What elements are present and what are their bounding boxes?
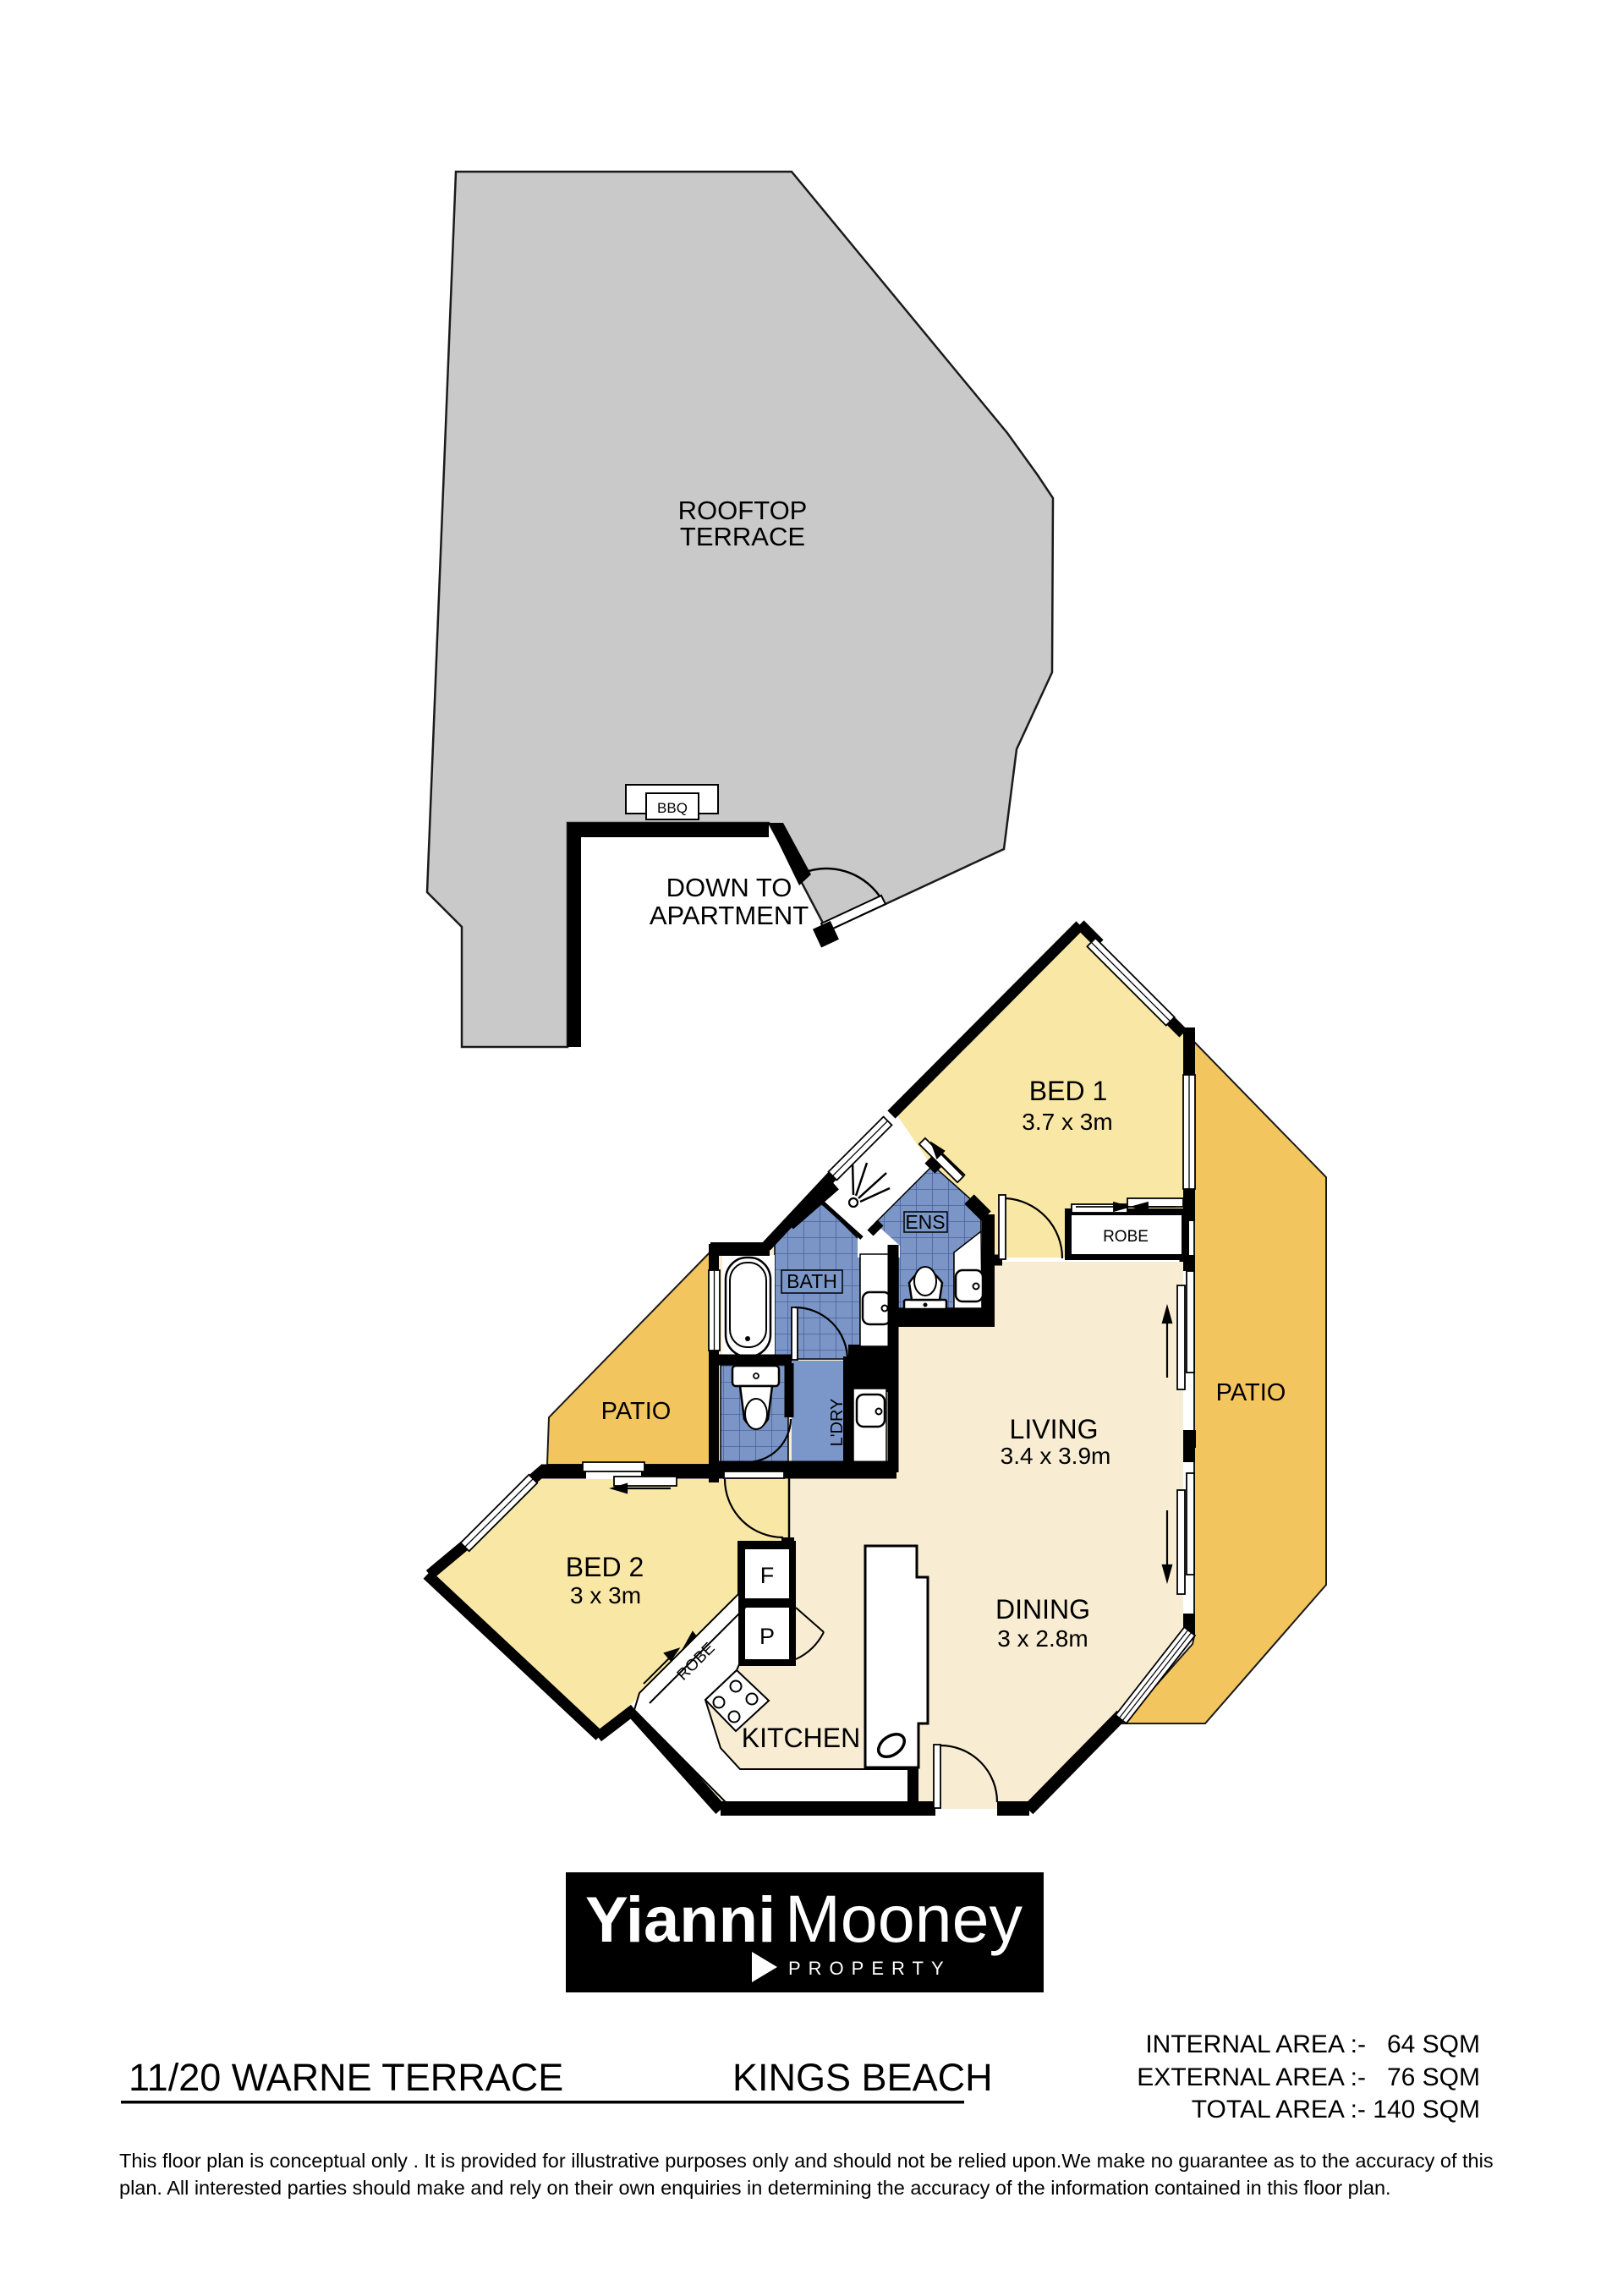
svg-text:BATH: BATH (787, 1270, 837, 1292)
svg-text:APARTMENT: APARTMENT (650, 901, 809, 930)
svg-text:KITCHEN: KITCHEN (742, 1723, 860, 1753)
svg-text:Mooney: Mooney (785, 1881, 1023, 1956)
svg-text:PATIO: PATIO (1216, 1379, 1286, 1406)
svg-text:LIVING: LIVING (1010, 1414, 1099, 1444)
svg-text:DINING: DINING (995, 1594, 1090, 1625)
svg-text:3 x 2.8m: 3 x 2.8m (997, 1625, 1088, 1652)
svg-text:INTERNAL AREA :- 64 SQM: INTERNAL AREA :- 64 SQM (1145, 2030, 1480, 2058)
svg-text:BED 1: BED 1 (1029, 1076, 1107, 1106)
svg-text:ROBE: ROBE (1103, 1228, 1149, 1246)
svg-text:F: F (760, 1563, 775, 1588)
svg-text:BED 2: BED 2 (566, 1552, 644, 1582)
svg-text:PROPERTY: PROPERTY (788, 1958, 951, 1979)
svg-text:EXTERNAL AREA :- 76 SQM: EXTERNAL AREA :- 76 SQM (1137, 2063, 1480, 2091)
svg-text:P: P (759, 1624, 775, 1649)
svg-text:KINGS BEACH: KINGS BEACH (732, 2056, 993, 2099)
svg-text:plan. All interested parties s: plan. All interested parties should make… (119, 2177, 1391, 2199)
svg-text:PATIO: PATIO (601, 1398, 672, 1425)
svg-text:TERRACE: TERRACE (680, 522, 805, 551)
svg-text:11/20 WARNE TERRACE: 11/20 WARNE TERRACE (129, 2056, 563, 2099)
svg-text:ROOFTOP: ROOFTOP (678, 496, 808, 525)
svg-text:This floor plan is conceptual: This floor plan is conceptual only . It … (119, 2150, 1494, 2172)
svg-text:TOTAL AREA :- 140 SQM: TOTAL AREA :- 140 SQM (1192, 2096, 1480, 2123)
svg-text:3.7 x 3m: 3.7 x 3m (1022, 1109, 1112, 1135)
svg-text:DOWN TO: DOWN TO (666, 873, 792, 902)
svg-text:BBQ: BBQ (657, 800, 688, 816)
svg-text:Yianni: Yianni (585, 1884, 776, 1956)
svg-text:ENS: ENS (905, 1211, 945, 1233)
svg-text:3.4 x 3.9m: 3.4 x 3.9m (1001, 1443, 1111, 1469)
svg-text:3 x 3m: 3 x 3m (570, 1582, 641, 1608)
